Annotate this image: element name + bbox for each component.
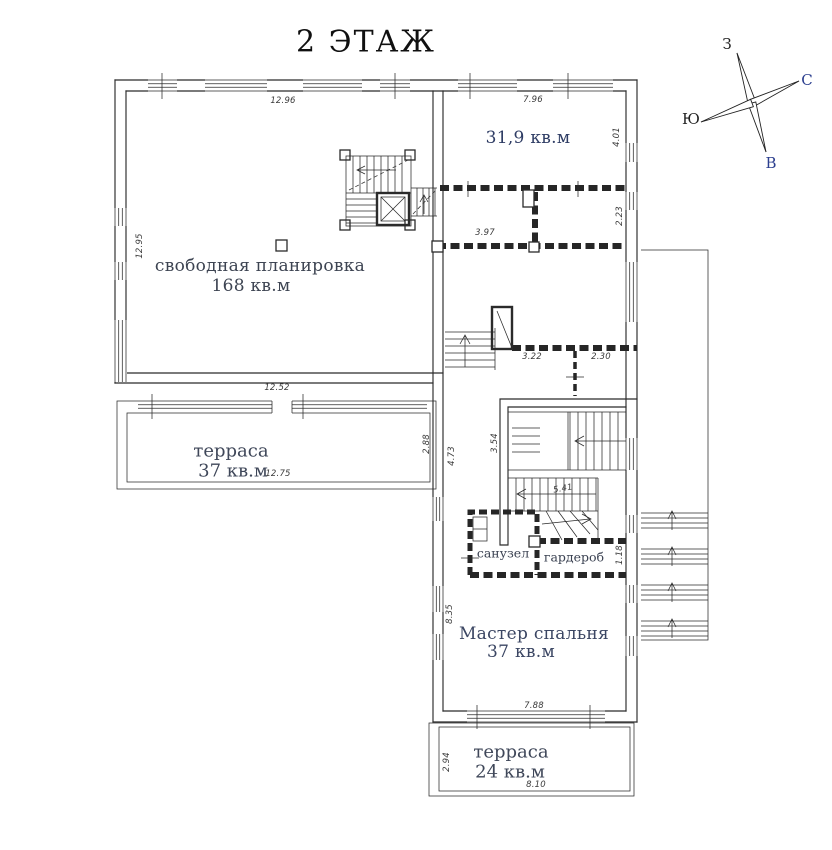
dim-top-room319: 7.96 <box>523 95 543 105</box>
room-label-master-name: Мастер спальня <box>459 624 609 644</box>
elevator-x <box>381 197 405 221</box>
room-label-master-area: 37 кв.м <box>487 642 555 662</box>
small-staircase <box>445 307 512 370</box>
core-arrow-up <box>420 195 428 214</box>
compass-ray-north <box>750 81 799 107</box>
dim-top-main: 12.96 <box>270 96 295 106</box>
stair-winder-steps <box>512 428 540 452</box>
railing-gap <box>272 400 292 414</box>
dim-hall-322: 3.22 <box>522 352 542 362</box>
window-mask-left <box>114 208 127 382</box>
dim-corridor-473: 4.73 <box>447 446 457 466</box>
annex <box>641 250 708 640</box>
small-stair-treads <box>445 328 495 370</box>
column <box>405 150 415 160</box>
door-swing-arc <box>497 311 512 348</box>
small-stair-arrow-up <box>460 335 470 367</box>
room-label-terrace-bottom-name: терраса <box>473 742 548 763</box>
dim-master-left: 8.35 <box>445 604 455 624</box>
core-outline <box>346 156 411 226</box>
bathroom-fixture <box>473 517 487 541</box>
dim-room-397: 3.97 <box>475 228 495 238</box>
window-mask-top <box>148 79 613 92</box>
dim-terrace2-depth: 2.94 <box>442 752 452 772</box>
room-label-bathroom: санузел <box>477 546 529 561</box>
column <box>529 536 540 547</box>
compass-ray-south <box>701 99 753 122</box>
dim-hall-230: 2.30 <box>591 352 611 362</box>
main-staircase <box>508 412 626 540</box>
compass-ray-east <box>748 102 766 152</box>
dim-left-main: 12.95 <box>135 233 145 258</box>
window-mask-wing-bottom <box>467 710 605 723</box>
annex-outline <box>641 250 708 640</box>
compass-ray-west <box>737 53 756 104</box>
compass-letter-north: С <box>801 71 812 89</box>
floor-plan-page: 2 ЭТАЖ З С Ю В 31,9 кв.м свободная плани… <box>0 0 832 850</box>
column <box>529 242 539 252</box>
room-label-terrace-left-name: терраса <box>193 441 268 462</box>
room-label-terrace-left-area: 37 кв.м <box>198 461 268 482</box>
compass-letter-east: В <box>765 154 776 172</box>
stair-fan-treads <box>546 511 598 540</box>
column <box>340 150 350 160</box>
room-label-free-area: 168 кв.м <box>211 276 290 296</box>
compass-letter-west: З <box>722 35 731 53</box>
page-title: 2 ЭТАЖ <box>296 25 436 60</box>
wall-bottom-left-block <box>115 373 443 383</box>
core-treads-top <box>353 156 402 193</box>
core-arrow-left <box>357 166 396 174</box>
dim-terrace-depth: 2.88 <box>422 434 432 454</box>
door-pocket <box>523 190 534 207</box>
stairwell-walls <box>500 399 637 545</box>
bathroom-walls <box>470 512 537 575</box>
room-label-free-name: свободная планировка <box>155 256 365 276</box>
dim-master-bottom: 7.88 <box>524 701 544 711</box>
annex-louvers <box>641 513 708 636</box>
dim-right-room319: 4.01 <box>612 127 622 147</box>
compass-rose <box>701 53 799 152</box>
core-guide-line <box>349 160 408 190</box>
stair-core <box>346 156 437 226</box>
floor-plan-drawing <box>0 0 832 850</box>
dim-terrace-top: 12.52 <box>264 383 289 393</box>
dim-terrace2-width: 8.10 <box>526 780 546 790</box>
room-label-wardrobe: гардероб <box>544 550 604 565</box>
dim-room-223: 2.23 <box>615 206 625 226</box>
compass-letter-south: Ю <box>682 110 700 128</box>
dim-wardrobe-118: 1.18 <box>615 545 625 565</box>
room-label-319-area: 31,9 кв.м <box>486 128 571 148</box>
column <box>340 220 350 230</box>
dim-terrace-width: 12.75 <box>265 469 290 479</box>
annex-arrows-up <box>668 511 676 638</box>
dim-stair-354: 3.54 <box>490 433 500 453</box>
wall-right <box>626 80 637 722</box>
window-mask-wing-left <box>432 497 444 660</box>
column <box>432 241 443 252</box>
interior-walls <box>437 181 637 575</box>
column <box>276 240 287 251</box>
